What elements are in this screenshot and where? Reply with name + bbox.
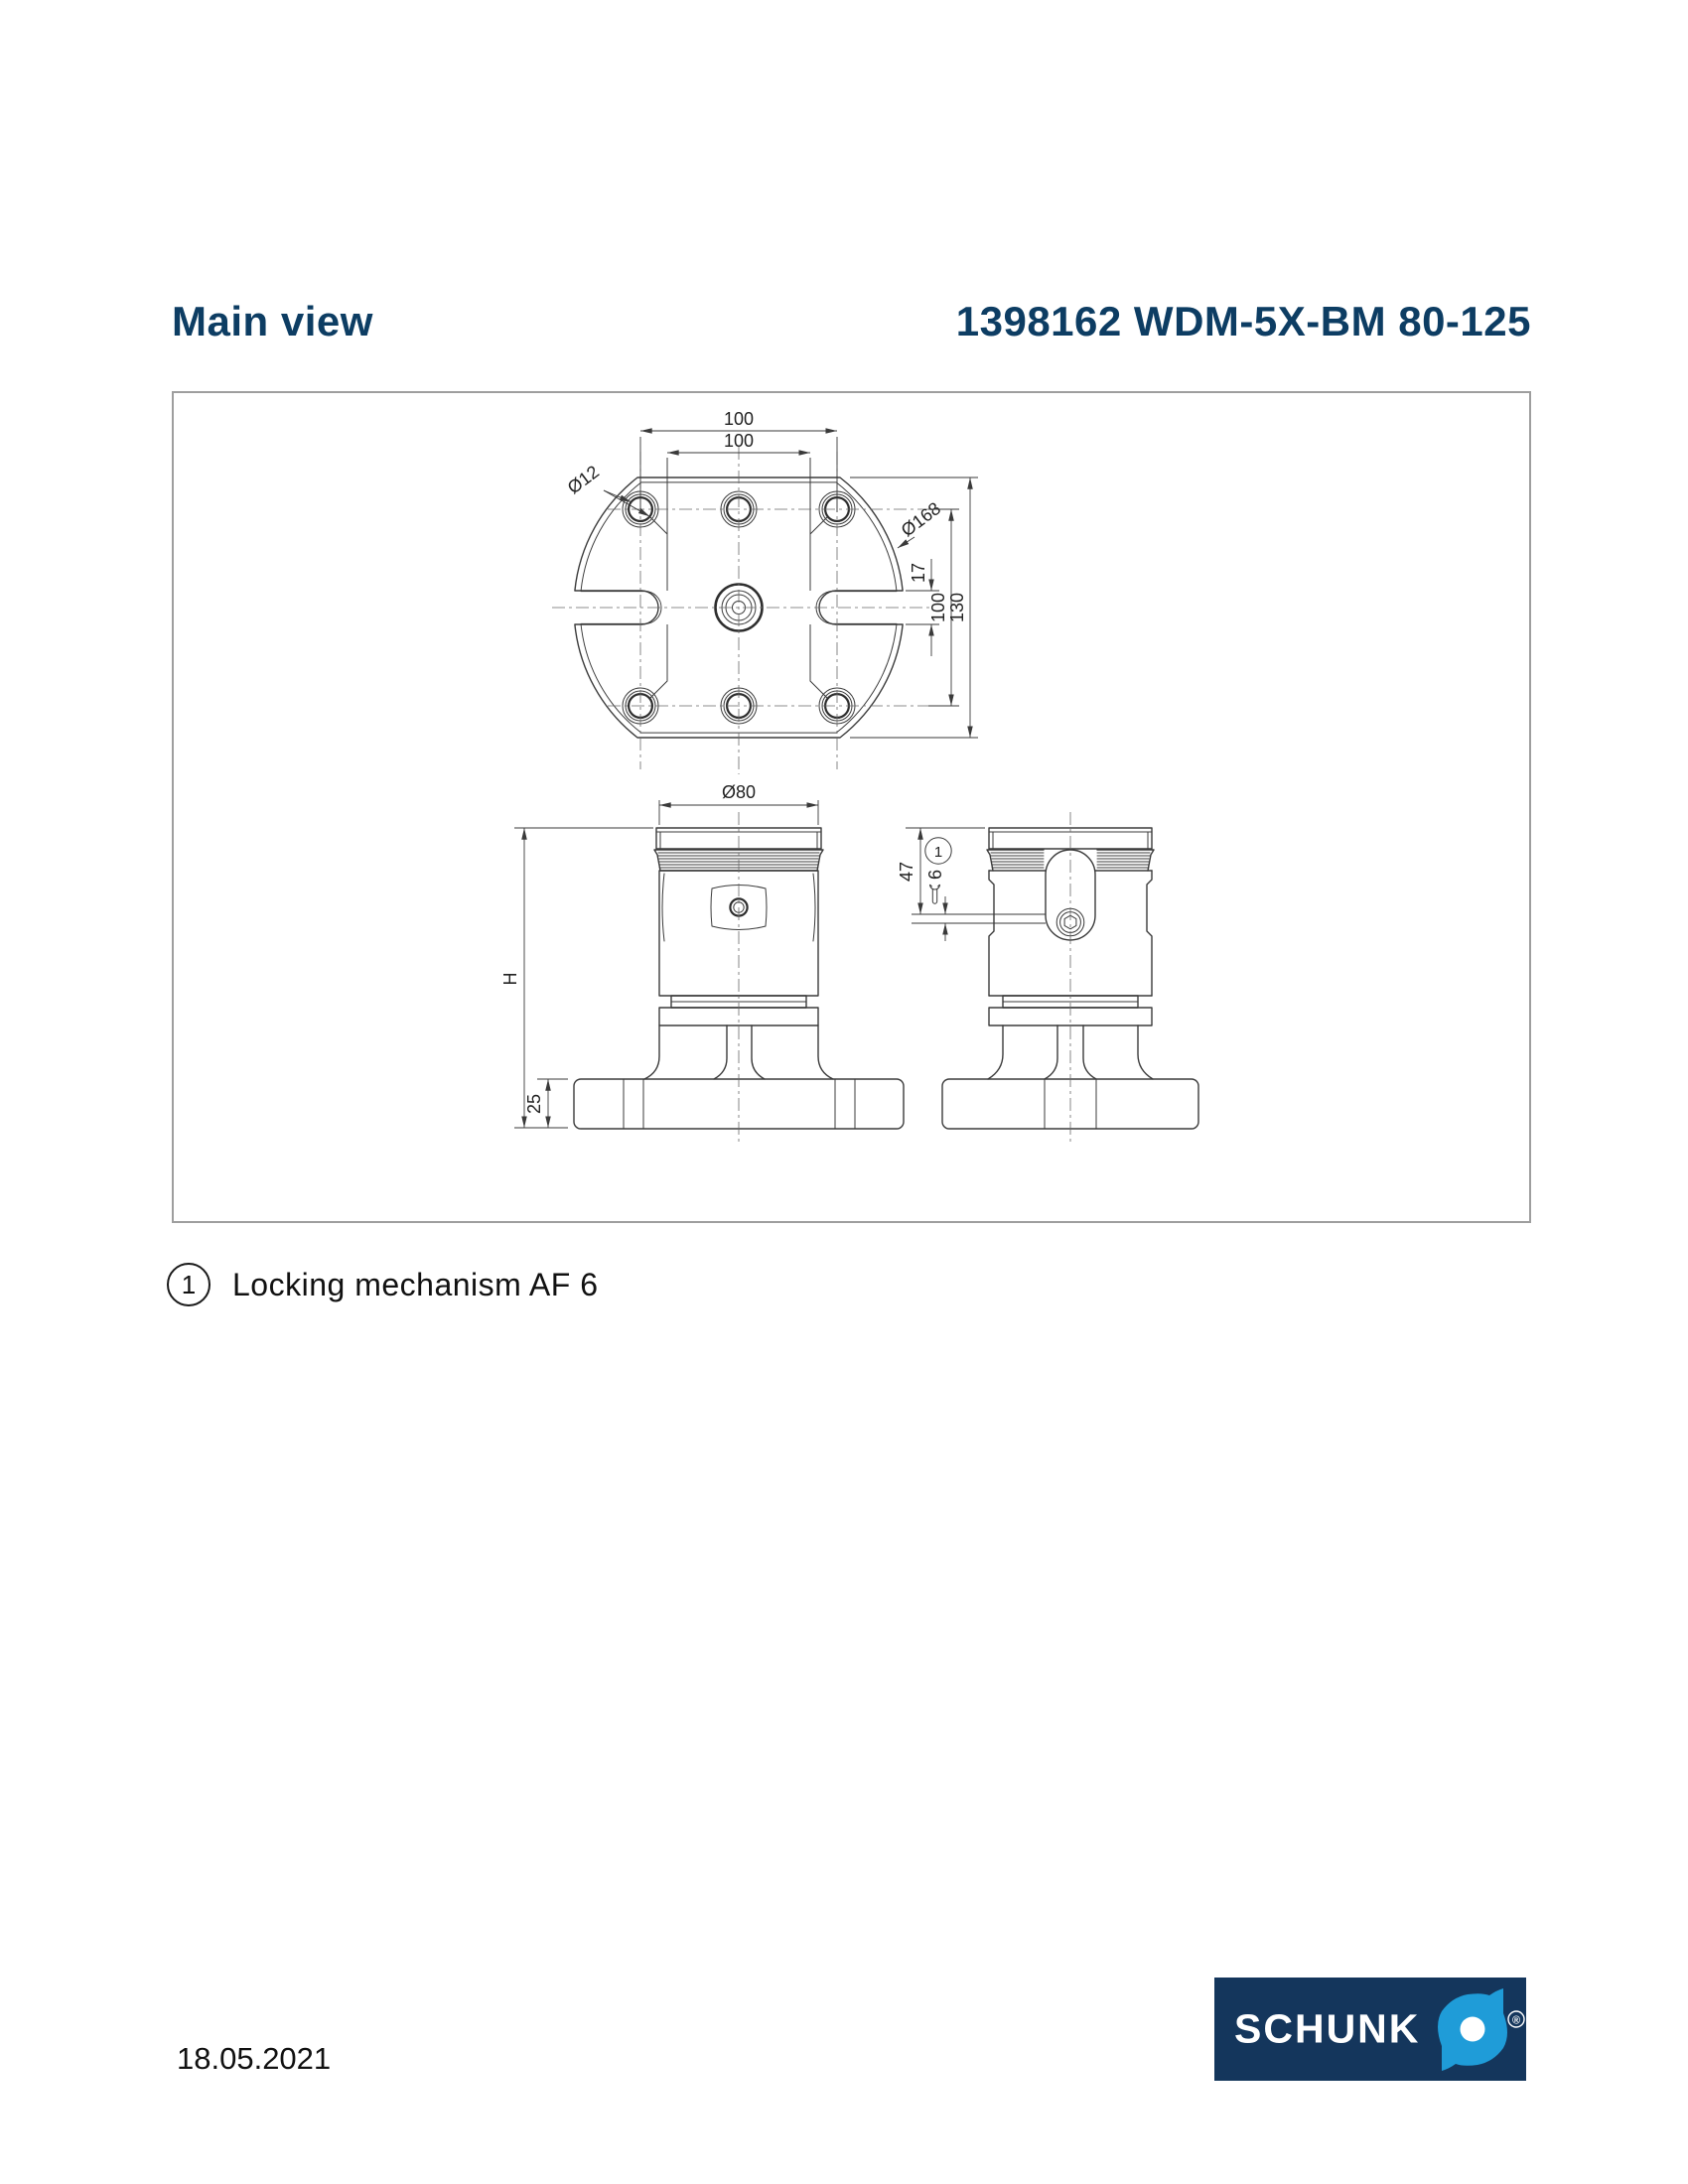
legend-marker: 1 [182, 1270, 196, 1300]
dim-front-dia: Ø80 [722, 782, 756, 802]
dim-hole-dia: Ø12 [564, 462, 603, 497]
legend: 1 Locking mechanism AF 6 [167, 1263, 599, 1306]
dim-top-span-inner: 100 [724, 431, 754, 451]
document-date: 18.05.2021 [177, 2041, 331, 2077]
dim-slot-height: 17 [909, 563, 928, 583]
dim-lock-size: 6 [925, 870, 945, 880]
technical-drawing: 100 100 Ø12 Ø168 17 100 130 [174, 393, 1529, 1221]
dim-top-to-lock: 47 [897, 862, 916, 882]
side-view: 47 6 1 [897, 812, 1198, 1144]
wrench-icon [930, 885, 940, 903]
dim-outer-dia: Ø168 [898, 498, 944, 540]
top-view-centerlines [552, 447, 945, 774]
dim-row-spacing: 100 [928, 593, 948, 622]
registered-trademark-icon: ® [1508, 2011, 1524, 2027]
legend-text: Locking mechanism AF 6 [232, 1267, 599, 1303]
top-view: 100 100 Ø12 Ø168 17 100 130 [552, 409, 978, 774]
side-view-lock-lines [912, 914, 1046, 923]
top-view-dimensions: 100 100 Ø12 Ø168 17 100 130 [564, 409, 978, 738]
dim-top-span-outer: 100 [724, 409, 754, 429]
callout-number: 1 [934, 844, 942, 861]
schunk-logo: SCHUNK ® [1214, 1978, 1526, 2081]
page-title: Main view [172, 298, 373, 345]
dim-base-height: 25 [524, 1094, 544, 1114]
legend-balloon: 1 [167, 1263, 211, 1306]
dim-front-height: H [500, 973, 520, 986]
schunk-pinwheel-icon: ® [1397, 1978, 1526, 2081]
svg-text:®: ® [1512, 2015, 1520, 2027]
side-view-dimensions: 47 6 1 [897, 828, 985, 941]
page: { "header": { "title_left": "Main view",… [0, 0, 1688, 2184]
drawing-frame: 100 100 Ø12 Ø168 17 100 130 [172, 391, 1531, 1223]
part-number-title: 1398162 WDM-5X-BM 80-125 [956, 298, 1531, 345]
schunk-logo-text: SCHUNK [1234, 2006, 1420, 2053]
dim-overall-height: 130 [947, 593, 967, 622]
front-view: Ø80 H 25 [500, 782, 904, 1144]
callout-balloon-1: 1 [925, 838, 951, 864]
